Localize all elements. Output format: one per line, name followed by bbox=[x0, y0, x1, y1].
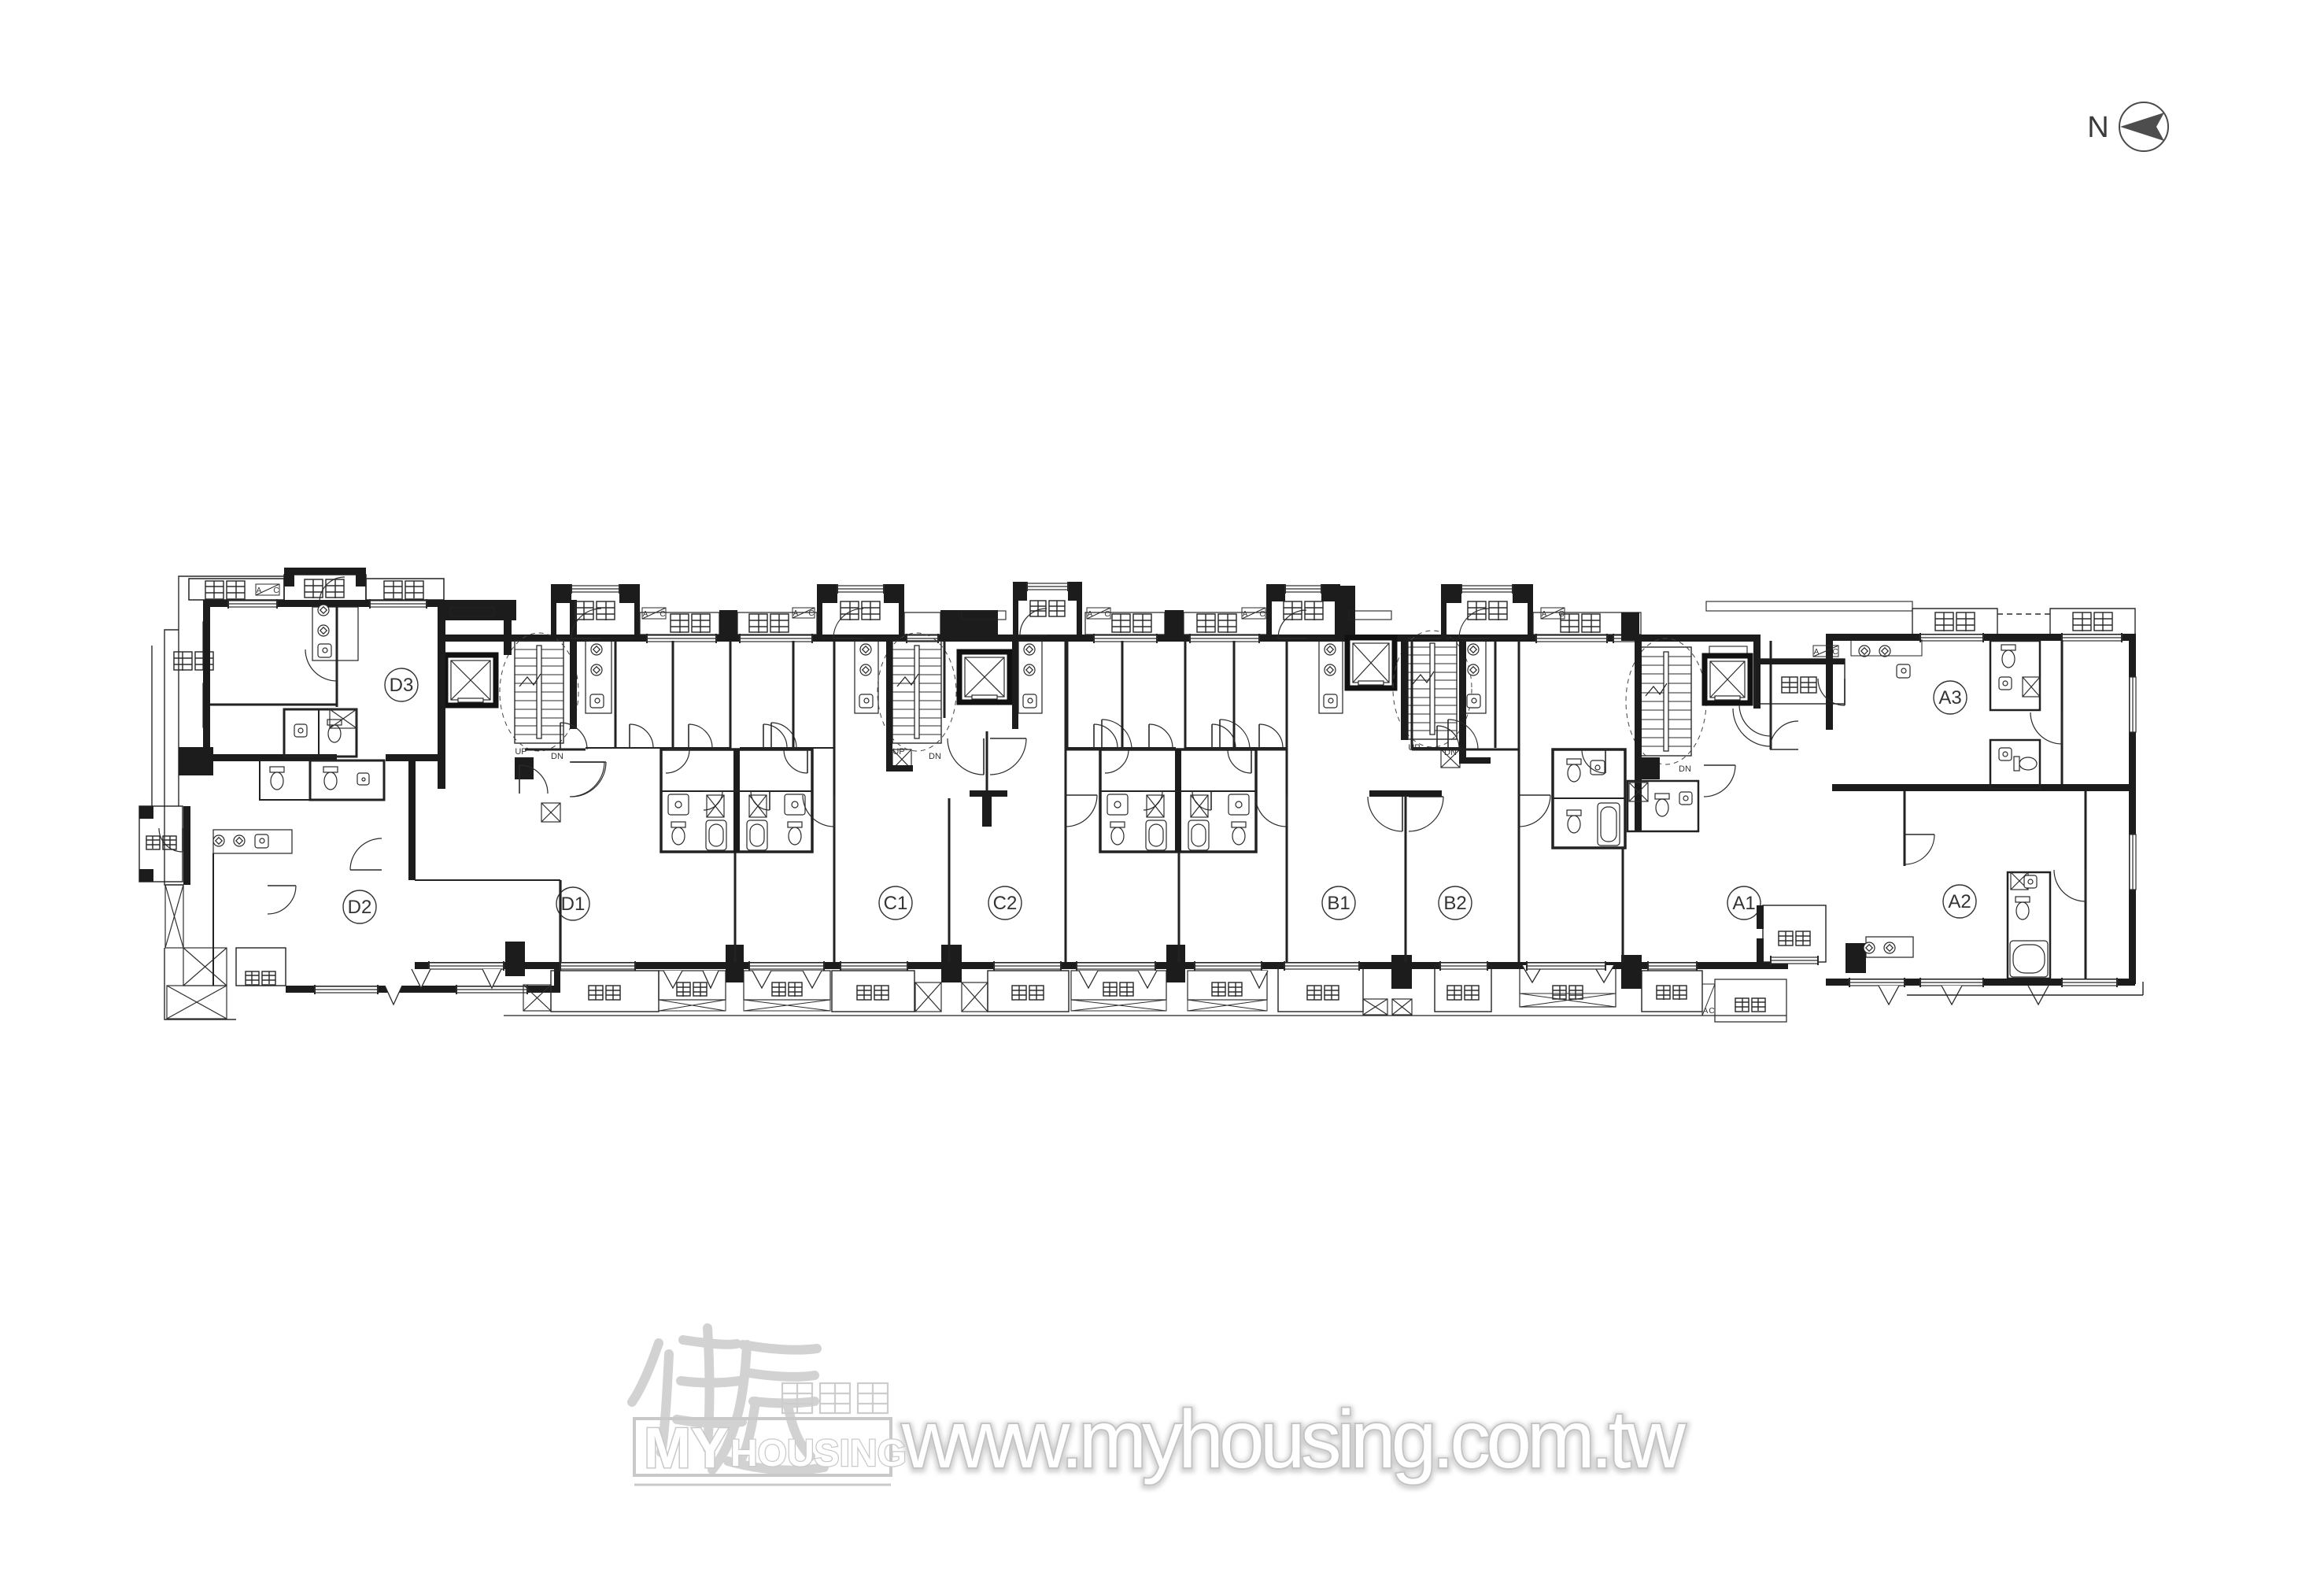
svg-text:D2: D2 bbox=[348, 897, 372, 918]
svg-text:A: A bbox=[1243, 610, 1248, 619]
svg-text:C: C bbox=[1259, 610, 1265, 619]
svg-text:A: A bbox=[1542, 610, 1547, 619]
svg-text:HOUSING: HOUSING bbox=[730, 1433, 907, 1475]
svg-text:C: C bbox=[1832, 648, 1838, 657]
svg-text:C2: C2 bbox=[993, 893, 1018, 914]
svg-text:C: C bbox=[1104, 610, 1110, 619]
svg-text:DN: DN bbox=[551, 752, 563, 761]
svg-text:A: A bbox=[793, 609, 799, 618]
svg-text:DN: DN bbox=[929, 752, 941, 761]
svg-text:A: A bbox=[1703, 1007, 1709, 1016]
svg-text:C: C bbox=[660, 610, 665, 619]
svg-text:A: A bbox=[257, 586, 262, 595]
svg-text:B2: B2 bbox=[1443, 893, 1466, 914]
svg-text:B1: B1 bbox=[1327, 893, 1350, 914]
svg-text:A1: A1 bbox=[1732, 893, 1755, 914]
svg-text:A: A bbox=[1814, 648, 1820, 657]
svg-text:C: C bbox=[808, 609, 814, 618]
svg-text:A: A bbox=[643, 610, 648, 619]
svg-text:A: A bbox=[1088, 610, 1093, 619]
svg-text:MY: MY bbox=[644, 1417, 729, 1480]
svg-text:D3: D3 bbox=[390, 675, 414, 696]
svg-text:N: N bbox=[2087, 111, 2108, 144]
svg-text:www.myhousing.com.tw: www.myhousing.com.tw bbox=[901, 1394, 1687, 1486]
svg-text:C: C bbox=[273, 586, 279, 595]
svg-text:C1: C1 bbox=[884, 893, 908, 914]
svg-text:A2: A2 bbox=[1948, 891, 1971, 912]
svg-text:A3: A3 bbox=[1938, 687, 1961, 709]
svg-text:C: C bbox=[1709, 1007, 1714, 1016]
svg-text:DN: DN bbox=[1679, 764, 1691, 774]
svg-text:D1: D1 bbox=[561, 894, 586, 915]
